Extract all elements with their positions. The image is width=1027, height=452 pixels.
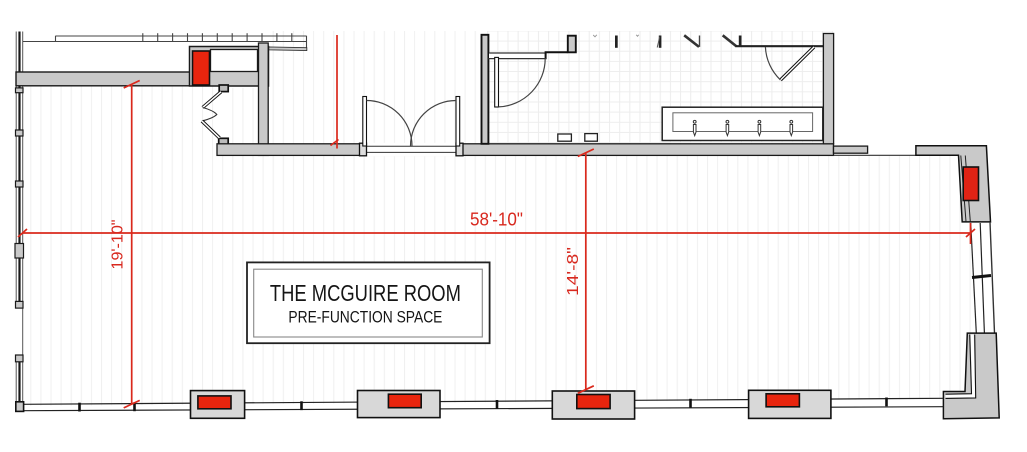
svg-text:THE MCGUIRE ROOM: THE MCGUIRE ROOM xyxy=(270,280,461,306)
svg-text:14'-8": 14'-8" xyxy=(565,247,582,296)
svg-text:58'-10": 58'-10" xyxy=(470,210,523,230)
svg-text:PRE-FUNCTION SPACE: PRE-FUNCTION SPACE xyxy=(288,308,442,327)
svg-text:19'-10": 19'-10" xyxy=(109,220,126,270)
